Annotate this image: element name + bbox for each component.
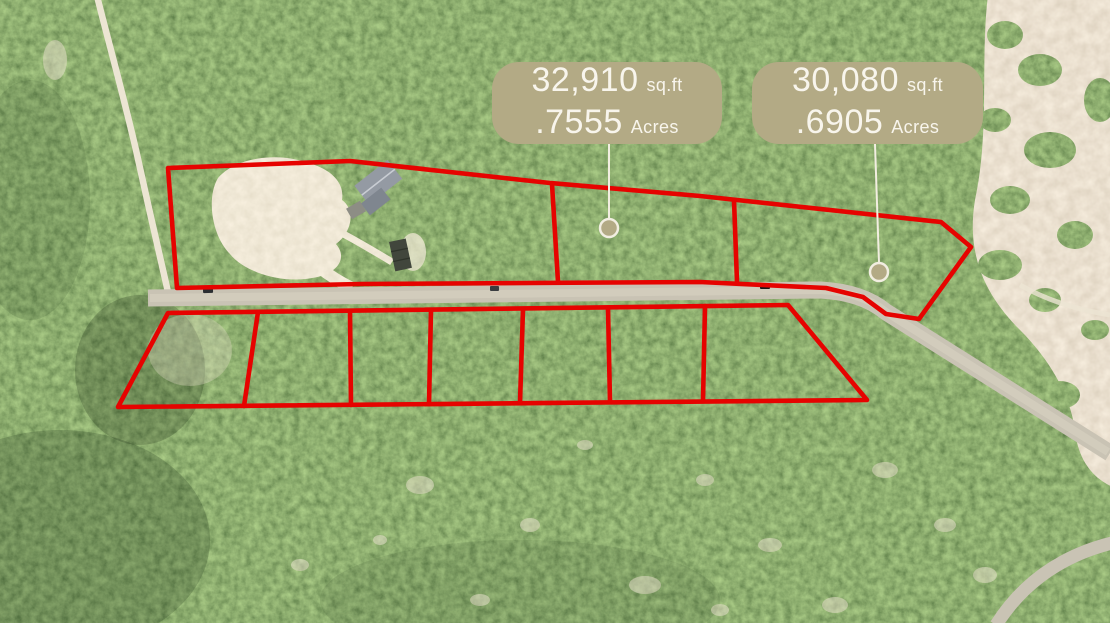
rock-patch	[470, 594, 490, 606]
rock-patch	[696, 474, 714, 486]
acres-value: .7555	[535, 104, 623, 140]
lot-size-callout: 32,910 sq.ft .7555 Acres	[492, 62, 722, 144]
vehicle	[490, 286, 499, 291]
sqft-row: 30,080 sq.ft	[792, 62, 943, 103]
rock-patch	[973, 567, 997, 583]
rock-patch	[406, 476, 434, 494]
rock-patch	[872, 462, 898, 478]
shrub-clump	[1057, 221, 1093, 249]
sqft-value: 30,080	[792, 62, 899, 98]
rock-patch	[291, 559, 309, 571]
sqft-row: 32,910 sq.ft	[531, 62, 682, 103]
acres-unit: Acres	[631, 109, 679, 145]
rock-patch	[520, 518, 540, 532]
acres-row: .7555 Acres	[535, 104, 679, 145]
rock-patch	[373, 535, 387, 545]
sqft-value: 32,910	[531, 62, 638, 98]
marker-dot	[600, 219, 618, 237]
upper-lot-divider	[734, 200, 737, 282]
rock-patch	[934, 518, 956, 532]
rock-patch	[711, 604, 729, 616]
rock-patch	[629, 576, 661, 594]
shrub-clump	[987, 21, 1023, 49]
acres-unit: Acres	[891, 109, 939, 145]
rock-patch	[822, 597, 848, 613]
acres-row: .6905 Acres	[796, 104, 940, 145]
sqft-unit: sq.ft	[646, 67, 682, 103]
lower-lot-divider	[520, 309, 523, 403]
shrub-clump	[990, 186, 1030, 214]
lot-size-callout: 30,080 sq.ft .6905 Acres	[752, 62, 983, 144]
shrub-clump	[1024, 132, 1076, 168]
shrub-clump	[979, 108, 1011, 132]
shrub-clump	[978, 250, 1022, 280]
aerial-lot-listing-image: 32,910 sq.ft .7555 Acres 30,080 sq.ft .6…	[0, 0, 1110, 623]
marker-dot	[870, 263, 888, 281]
sqft-unit: sq.ft	[907, 67, 943, 103]
shrub-clump	[1018, 54, 1062, 86]
acres-value: .6905	[796, 104, 884, 140]
rock-patch	[758, 538, 782, 552]
lower-lot-divider	[429, 310, 431, 404]
lower-lot-divider	[703, 306, 705, 401]
lower-lot-divider	[350, 311, 351, 405]
shrub-clump	[1081, 320, 1109, 340]
rock-patch	[43, 40, 67, 80]
rock-patch	[577, 440, 593, 450]
lower-lot-divider	[608, 308, 610, 402]
